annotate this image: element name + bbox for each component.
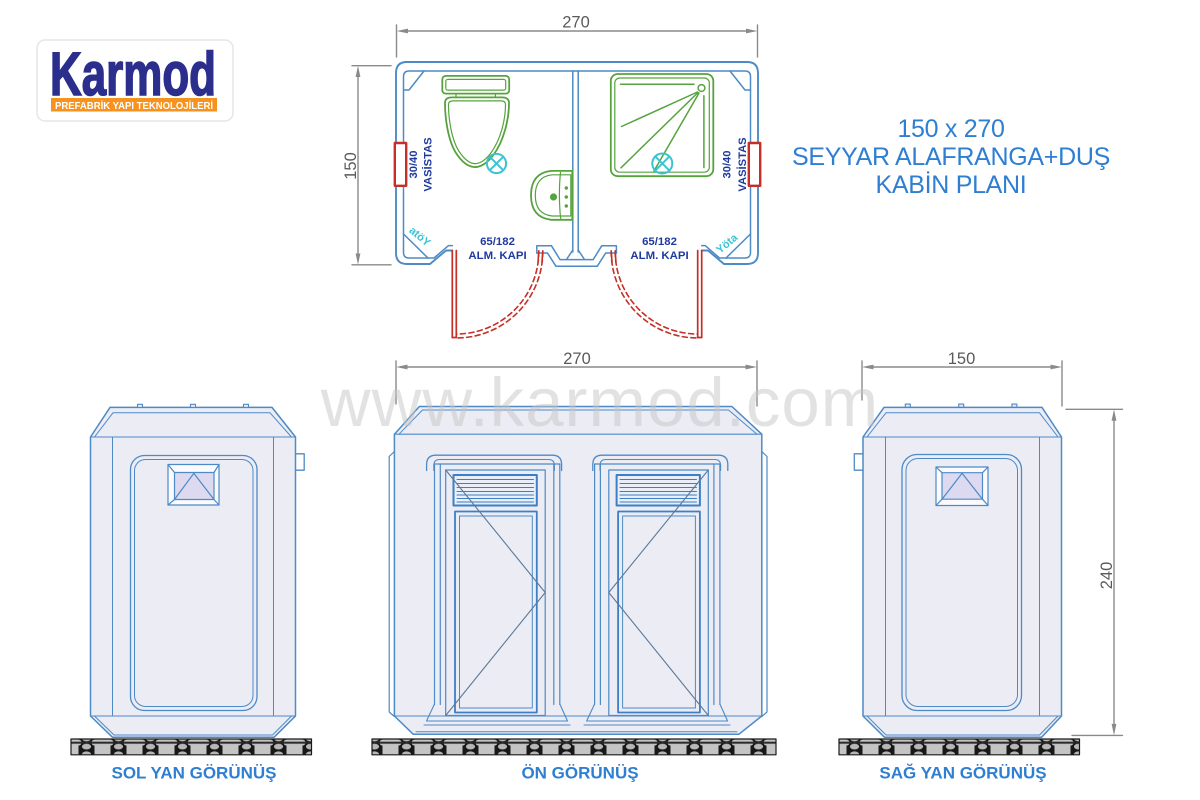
svg-text:SEYYAR ALAFRANGA+DUŞ: SEYYAR ALAFRANGA+DUŞ xyxy=(792,143,1110,171)
svg-text:atöY: atöY xyxy=(407,225,433,250)
svg-text:Yöta: Yöta xyxy=(714,231,741,256)
svg-text:150: 150 xyxy=(948,350,976,368)
svg-text:VASİSTAS: VASİSTAS xyxy=(736,137,749,192)
svg-text:SAĞ YAN GÖRÜNÜŞ: SAĞ YAN GÖRÜNÜŞ xyxy=(879,764,1046,783)
svg-text:SOL YAN GÖRÜNÜŞ: SOL YAN GÖRÜNÜŞ xyxy=(111,764,276,783)
svg-text:65/182: 65/182 xyxy=(642,236,677,248)
svg-text:VASİSTAS: VASİSTAS xyxy=(422,137,435,192)
svg-text:30/40: 30/40 xyxy=(408,151,420,179)
svg-text:KABİN PLANI: KABİN PLANI xyxy=(876,170,1027,199)
svg-text:30/40: 30/40 xyxy=(722,151,734,179)
svg-text:PREFABRİK YAPI TEKNOLOJİLERİ: PREFABRİK YAPI TEKNOLOJİLERİ xyxy=(55,99,213,112)
svg-text:150 x 270: 150 x 270 xyxy=(897,115,1004,143)
svg-text:270: 270 xyxy=(562,14,590,32)
svg-text:ÖN GÖRÜNÜŞ: ÖN GÖRÜNÜŞ xyxy=(521,764,638,783)
svg-text:www.karmod.com: www.karmod.com xyxy=(320,364,879,441)
svg-text:ALM. KAPI: ALM. KAPI xyxy=(468,250,526,262)
svg-text:Karmod: Karmod xyxy=(50,40,216,108)
svg-text:65/182: 65/182 xyxy=(480,236,515,248)
svg-text:ALM. KAPI: ALM. KAPI xyxy=(630,250,688,262)
svg-text:150: 150 xyxy=(342,152,360,180)
svg-text:240: 240 xyxy=(1098,562,1116,590)
